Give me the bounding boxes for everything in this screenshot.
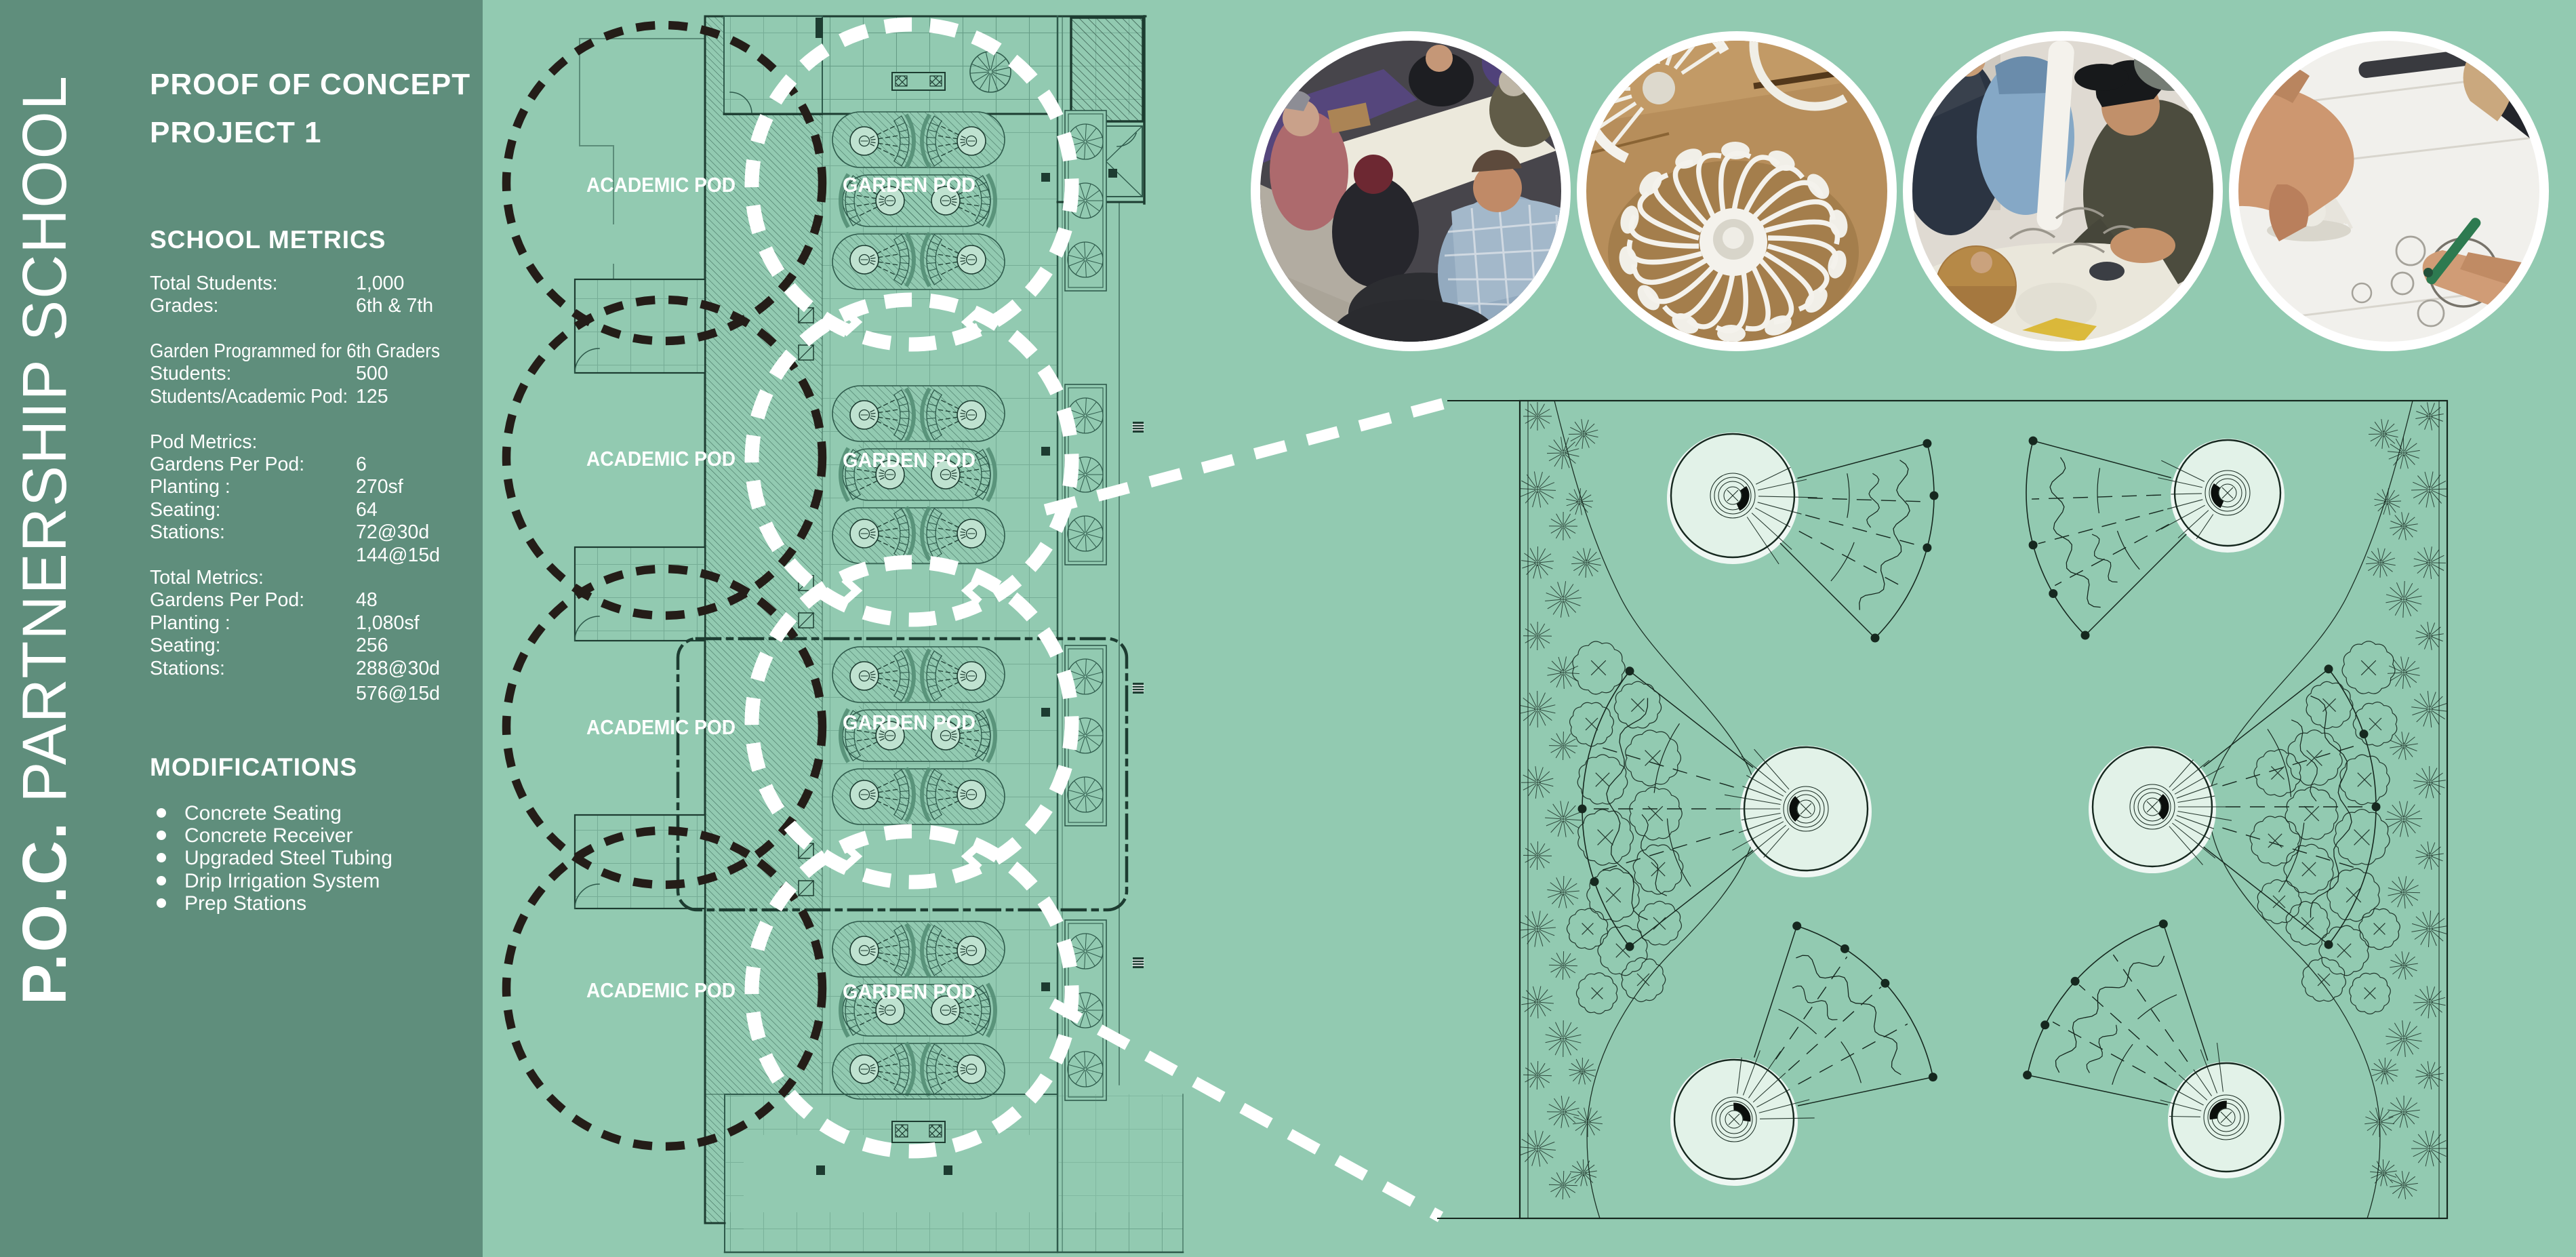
svg-text:256: 256: [356, 635, 388, 656]
svg-text:288@30d: 288@30d: [356, 658, 440, 679]
svg-text:GARDEN POD: GARDEN POD: [843, 173, 975, 197]
svg-text:MODIFICATIONS: MODIFICATIONS: [150, 753, 357, 781]
svg-text:6: 6: [356, 454, 367, 475]
svg-text:Upgraded Steel Tubing: Upgraded Steel Tubing: [184, 847, 393, 869]
svg-text:Seating:: Seating:: [150, 635, 221, 656]
svg-text:Total Students:: Total Students:: [150, 273, 278, 294]
svg-text:Stations:: Stations:: [150, 521, 225, 543]
svg-text:Concrete Seating: Concrete Seating: [184, 802, 342, 824]
svg-text:72@30d: 72@30d: [356, 521, 429, 543]
svg-text:Total Metrics:: Total Metrics:: [150, 567, 264, 588]
svg-text:GARDEN POD: GARDEN POD: [843, 711, 975, 734]
svg-text:Stations:: Stations:: [150, 658, 225, 679]
svg-text:Concrete Receiver: Concrete Receiver: [184, 824, 353, 847]
svg-text:500: 500: [356, 363, 388, 384]
svg-text:Planting :: Planting :: [150, 612, 230, 634]
svg-text:ACADEMIC POD: ACADEMIC POD: [586, 715, 736, 739]
svg-text:P.O.C. PARTNERSHIP SCHOOL: P.O.C. PARTNERSHIP SCHOOL: [10, 75, 79, 1005]
svg-text:PROJECT 1: PROJECT 1: [150, 116, 322, 149]
svg-text:GARDEN POD: GARDEN POD: [843, 448, 975, 472]
svg-text:1,000: 1,000: [356, 273, 404, 294]
svg-text:Pod Metrics:: Pod Metrics:: [150, 431, 257, 453]
svg-text:Prep Stations: Prep Stations: [184, 892, 306, 915]
svg-text:ACADEMIC POD: ACADEMIC POD: [586, 447, 736, 471]
svg-text:270sf: 270sf: [356, 476, 403, 498]
svg-text:ACADEMIC POD: ACADEMIC POD: [586, 173, 736, 197]
svg-text:Students:: Students:: [150, 363, 231, 384]
svg-text:Seating:: Seating:: [150, 499, 221, 521]
svg-text:64: 64: [356, 499, 378, 521]
svg-text:Planting :: Planting :: [150, 476, 230, 498]
svg-text:ACADEMIC POD: ACADEMIC POD: [586, 978, 736, 1002]
svg-text:48: 48: [356, 589, 378, 611]
svg-text:125: 125: [356, 386, 388, 407]
svg-text:1,080sf: 1,080sf: [356, 612, 420, 634]
svg-text:GARDEN POD: GARDEN POD: [843, 980, 975, 1003]
svg-text:Gardens Per Pod:: Gardens Per Pod:: [150, 454, 304, 475]
svg-text:SCHOOL METRICS: SCHOOL METRICS: [150, 226, 386, 254]
svg-text:144@15d: 144@15d: [356, 544, 440, 566]
svg-text:Gardens Per Pod:: Gardens Per Pod:: [150, 589, 304, 611]
svg-text:576@15d: 576@15d: [356, 683, 440, 704]
svg-text:Garden Programmed for 6th Grad: Garden Programmed for 6th Graders: [150, 340, 440, 362]
svg-text:Drip Irrigation System: Drip Irrigation System: [184, 870, 380, 892]
svg-text:PROOF OF CONCEPT: PROOF OF CONCEPT: [150, 68, 470, 101]
svg-text:6th & 7th: 6th & 7th: [356, 295, 433, 317]
svg-text:Students/Academic Pod:: Students/Academic Pod:: [150, 386, 348, 407]
svg-text:Grades:: Grades:: [150, 295, 218, 317]
